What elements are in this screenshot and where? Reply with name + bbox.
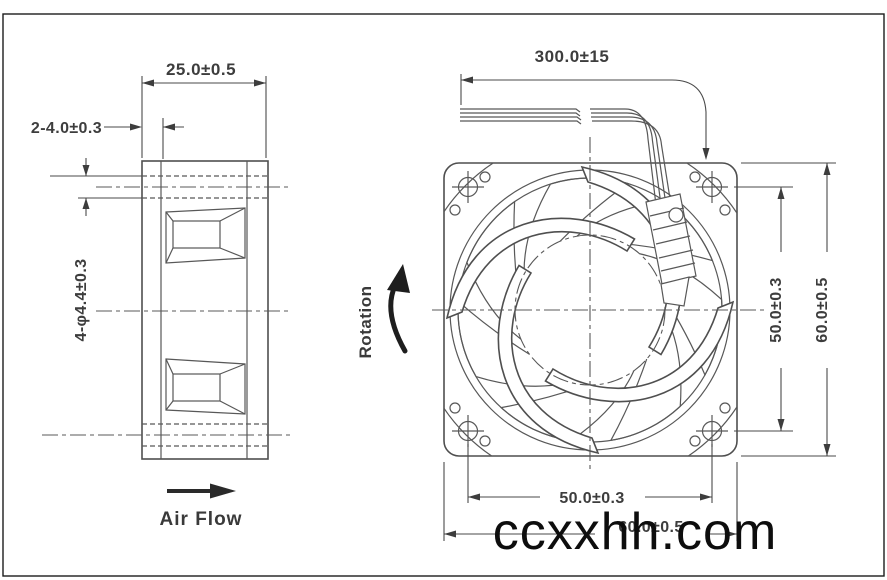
hole-pitch-vertical-label: 50.0±0.3 [768,277,785,342]
support-strut [447,218,635,318]
mounting-hole [450,171,490,215]
flange-dim-label: 2-4.0±0.3 [31,120,102,137]
wire-length-dim-label: 300.0±15 [535,47,610,66]
fan-dimension-drawing: 25.0±0.5 2-4.0±0.3 4-φ4.4±0.3 Air Flow [0,0,887,580]
air-flow-label: Air Flow [160,509,243,530]
dim-wire-length: 300.0±15 [461,47,710,160]
support-strut [546,302,734,402]
air-flow-arrow-icon [167,484,236,499]
dim-side-width: 25.0±0.5 [142,60,266,158]
drawing-canvas: 25.0±0.5 2-4.0±0.3 4-φ4.4±0.3 Air Flow [0,0,887,580]
side-width-dim-label: 25.0±0.5 [166,60,236,79]
watermark-text: ccxxhh.com [493,503,778,561]
frame-height-label: 60.0±0.5 [814,277,831,342]
dim-hole-diameter: 4-φ4.4±0.3 [50,158,142,341]
blade-section-lower [166,359,245,414]
side-view: 25.0±0.5 2-4.0±0.3 4-φ4.4±0.3 Air Flow [31,60,292,530]
dim-hole-pitch-vertical: 50.0±0.3 [734,187,793,431]
front-view: 300.0±15 Rotation 50.0±0.3 60.0±0.5 [356,47,836,541]
fan-blades [432,146,752,462]
support-strut [498,266,598,454]
rotation-arrow-icon [387,264,410,351]
blade-section-upper [166,208,245,263]
mounting-hole [690,171,730,215]
rotation-label: Rotation [356,286,375,359]
hole-dim-label: 4-φ4.4±0.3 [73,259,90,342]
dim-flange-thickness: 2-4.0±0.3 [31,118,184,159]
